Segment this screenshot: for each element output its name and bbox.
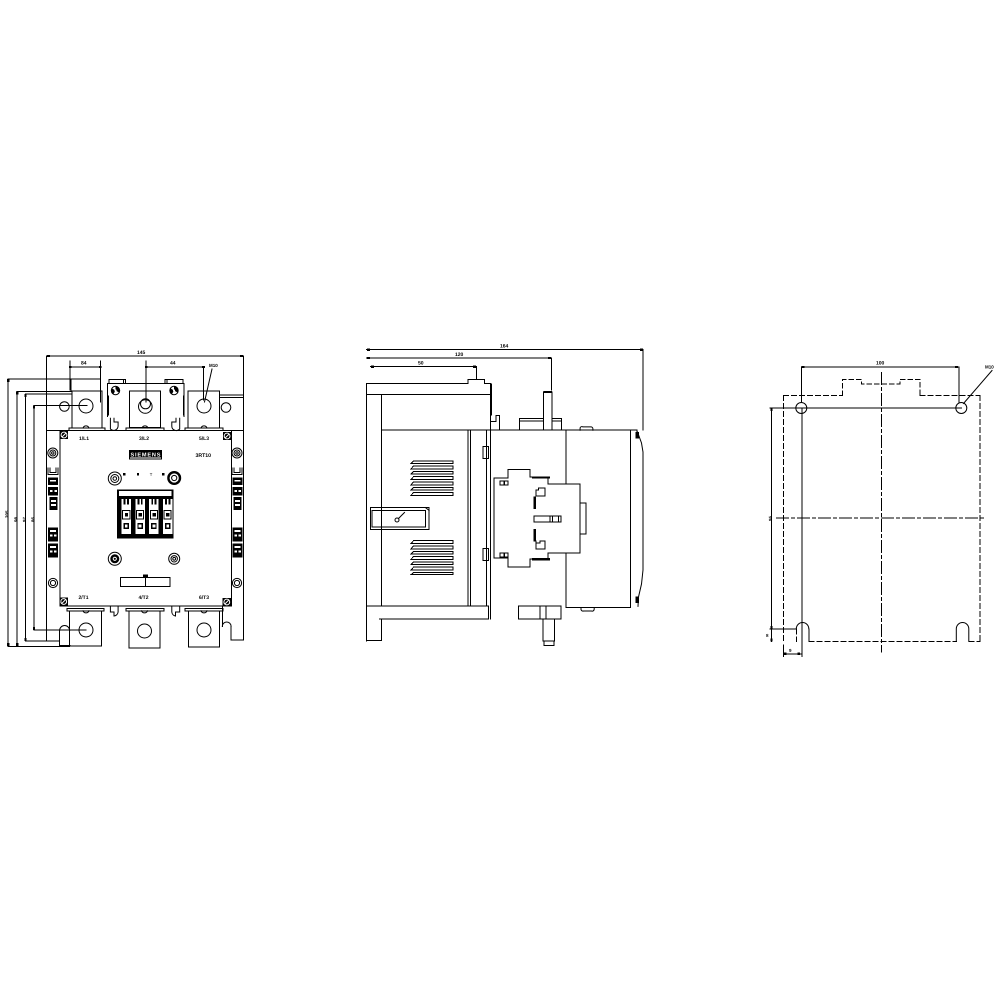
svg-text:95: 95: [768, 515, 773, 521]
svg-text:2/T1: 2/T1: [79, 595, 89, 601]
svg-text:6/T3: 6/T3: [199, 595, 209, 601]
svg-text:84: 84: [81, 361, 87, 367]
svg-text:M10: M10: [985, 365, 994, 370]
svg-text:9: 9: [789, 648, 792, 653]
svg-text:4/T2: 4/T2: [139, 595, 149, 601]
svg-text:3/L2: 3/L2: [139, 436, 149, 442]
svg-text:M10: M10: [209, 363, 218, 368]
svg-text:98: 98: [14, 516, 19, 522]
svg-text:100: 100: [876, 361, 885, 367]
svg-text:86: 86: [30, 516, 35, 522]
svg-text:1/L1: 1/L1: [79, 436, 89, 442]
svg-text:164: 164: [500, 344, 509, 350]
svg-text:97: 97: [22, 516, 27, 522]
svg-text:3RT10: 3RT10: [196, 453, 212, 459]
svg-text:50: 50: [418, 361, 424, 367]
svg-text:5/L3: 5/L3: [199, 436, 209, 442]
svg-text:145: 145: [137, 350, 146, 356]
svg-text:120: 120: [455, 352, 464, 358]
svg-text:8: 8: [766, 633, 769, 638]
svg-text:T: T: [150, 472, 153, 477]
svg-text:205: 205: [5, 510, 10, 518]
svg-text:44: 44: [170, 361, 176, 367]
